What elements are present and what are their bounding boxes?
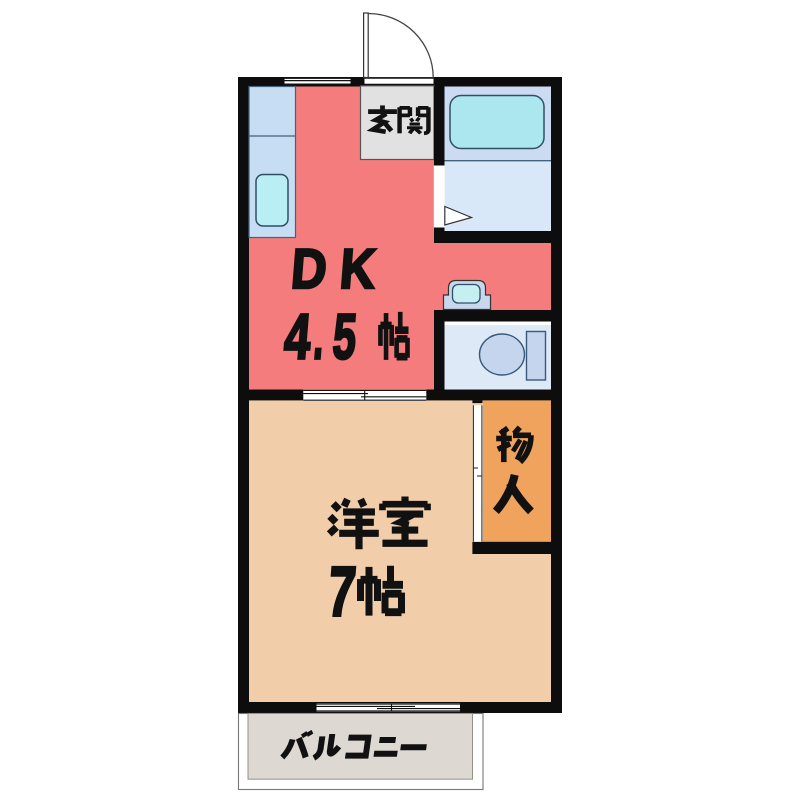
svg-text:D K: D K bbox=[289, 237, 378, 300]
